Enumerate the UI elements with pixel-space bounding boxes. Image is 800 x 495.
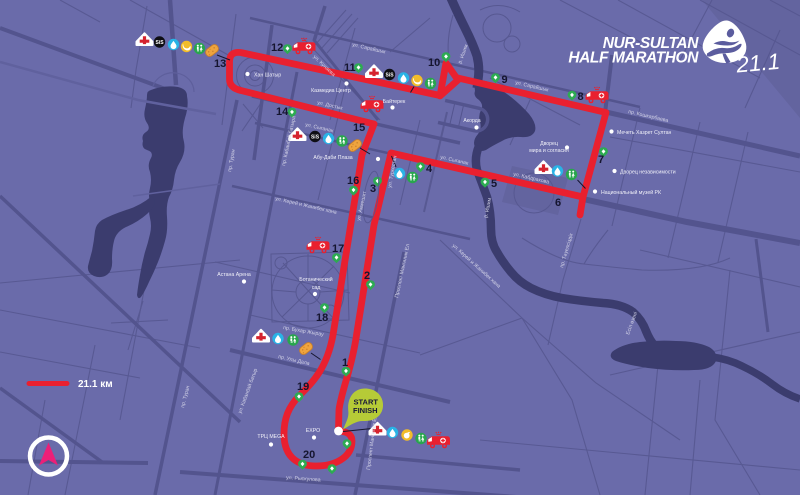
svg-text:Байтерек: Байтерек bbox=[383, 98, 406, 105]
svg-text:ТРЦ MEGA: ТРЦ MEGA bbox=[257, 434, 285, 440]
svg-text:сад: сад bbox=[312, 285, 321, 291]
svg-text:21.1 км: 21.1 км bbox=[78, 379, 113, 390]
svg-text:Астана Арена: Астана Арена bbox=[217, 272, 251, 278]
svg-text:2: 2 bbox=[364, 270, 370, 282]
svg-text:10: 10 bbox=[428, 57, 440, 69]
svg-text:17: 17 bbox=[332, 243, 344, 255]
svg-text:6: 6 bbox=[555, 197, 561, 209]
svg-text:21.1: 21.1 bbox=[734, 49, 781, 78]
svg-text:15: 15 bbox=[353, 122, 365, 134]
svg-text:9: 9 bbox=[502, 74, 508, 86]
svg-text:мира и согласия: мира и согласия bbox=[529, 148, 569, 154]
svg-text:Национальный музей РК: Национальный музей РК bbox=[601, 189, 661, 196]
svg-text:EXPO: EXPO bbox=[306, 428, 320, 434]
svg-text:Казмедиа Центр: Казмедиа Центр bbox=[311, 88, 351, 94]
svg-text:Абу-Даби Плаза: Абу-Даби Плаза bbox=[313, 155, 352, 161]
svg-text:1: 1 bbox=[342, 357, 348, 369]
svg-text:11: 11 bbox=[344, 62, 356, 74]
svg-text:5: 5 bbox=[491, 178, 497, 190]
svg-text:8: 8 bbox=[578, 91, 584, 103]
svg-text:Хан Шатыр: Хан Шатыр bbox=[254, 73, 281, 79]
svg-text:Акорда: Акорда bbox=[463, 118, 480, 124]
svg-text:Дворец независимости: Дворец независимости bbox=[620, 170, 676, 176]
svg-text:18: 18 bbox=[316, 312, 328, 324]
svg-text:4: 4 bbox=[426, 163, 433, 175]
svg-text:3: 3 bbox=[370, 183, 376, 195]
svg-text:16: 16 bbox=[347, 175, 359, 187]
svg-text:Ботанический: Ботанический bbox=[299, 276, 332, 283]
svg-text:Дворец: Дворец bbox=[540, 141, 558, 147]
svg-text:7: 7 bbox=[598, 154, 604, 166]
svg-text:20: 20 bbox=[303, 449, 315, 461]
svg-text:19: 19 bbox=[297, 381, 309, 393]
svg-text:HALF MARATHON: HALF MARATHON bbox=[568, 50, 699, 67]
svg-text:13: 13 bbox=[214, 58, 226, 70]
svg-text:Мечеть Хазрет Султан: Мечеть Хазрет Султан bbox=[617, 130, 672, 136]
svg-text:FINISH: FINISH bbox=[353, 406, 378, 415]
svg-text:12: 12 bbox=[271, 42, 283, 54]
svg-text:14: 14 bbox=[276, 106, 289, 118]
